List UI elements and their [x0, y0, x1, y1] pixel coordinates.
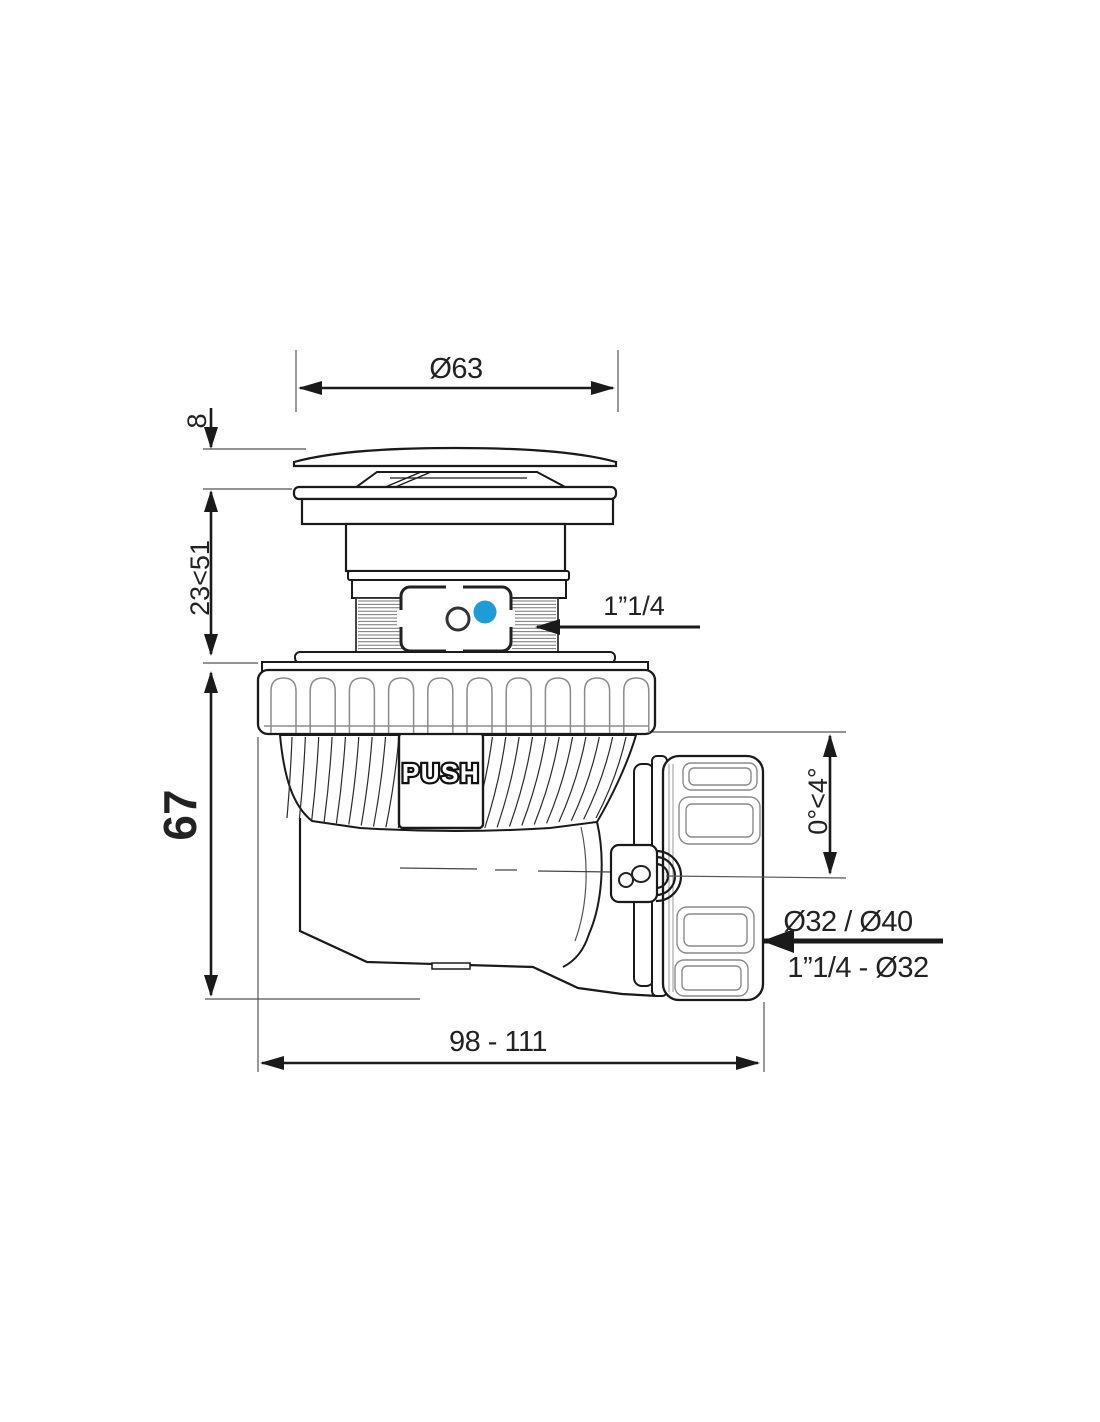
arrow-up-icon	[823, 734, 837, 757]
locking-ring-nut	[258, 670, 655, 734]
dim-cap-height: 8	[182, 408, 218, 449]
keyhole-icon	[619, 873, 633, 887]
dim-label-outlet-thread: 1”1/4 - Ø32	[787, 952, 928, 984]
flange	[294, 487, 616, 524]
outlet-nut	[663, 756, 763, 1000]
body-bottom-slot	[432, 963, 470, 969]
dim-outlet: Ø32 / Ø40 1”1/4 - Ø32	[762, 906, 943, 984]
dim-angle-range: 0°<4°	[803, 734, 837, 875]
arrow-up-icon	[204, 490, 218, 512]
dim-adjust-range: 23<51	[185, 490, 218, 656]
dim-label-adjust-range: 23<51	[185, 540, 215, 616]
dim-label-outlet-diameter: Ø32 / Ø40	[783, 906, 912, 938]
arrow-down-icon	[204, 427, 218, 449]
technical-drawing: PUSH	[0, 0, 1100, 1422]
push-label: PUSH	[402, 758, 480, 788]
arrow-down-icon	[204, 975, 218, 997]
arrow-up-icon	[204, 671, 218, 693]
dim-body-height: 67	[154, 671, 218, 997]
dim-length-range: 98 - 111	[260, 1026, 760, 1070]
technical-drawing-page: PUSH	[0, 0, 1100, 1422]
strainer-support	[355, 472, 567, 488]
arrow-down-icon	[823, 852, 837, 875]
blue-dot	[474, 601, 497, 624]
white-dot	[447, 608, 469, 630]
trap-body	[300, 818, 658, 996]
arrow-down-icon	[204, 634, 218, 656]
dim-label-inlet-thread: 1”1/4	[603, 591, 665, 621]
push-button: PUSH	[399, 733, 483, 828]
dim-label-cap-height: 8	[182, 413, 212, 428]
center-axis-dashes	[400, 868, 612, 872]
dim-top-diameter: Ø63	[298, 353, 615, 395]
cap	[294, 448, 616, 466]
arrow-left-icon	[298, 381, 322, 395]
arrow-left-icon	[260, 1056, 284, 1070]
dim-label-length-range: 98 - 111	[449, 1026, 547, 1058]
product-tag	[397, 583, 515, 655]
arrow-right-icon	[736, 1056, 760, 1070]
arrow-right-icon	[591, 381, 615, 395]
keyhole-bracket	[611, 845, 657, 902]
dim-label-body-height: 67	[154, 789, 206, 840]
dim-label-angle-range: 0°<4°	[803, 767, 833, 834]
dim-label-top-diameter: Ø63	[429, 353, 482, 385]
